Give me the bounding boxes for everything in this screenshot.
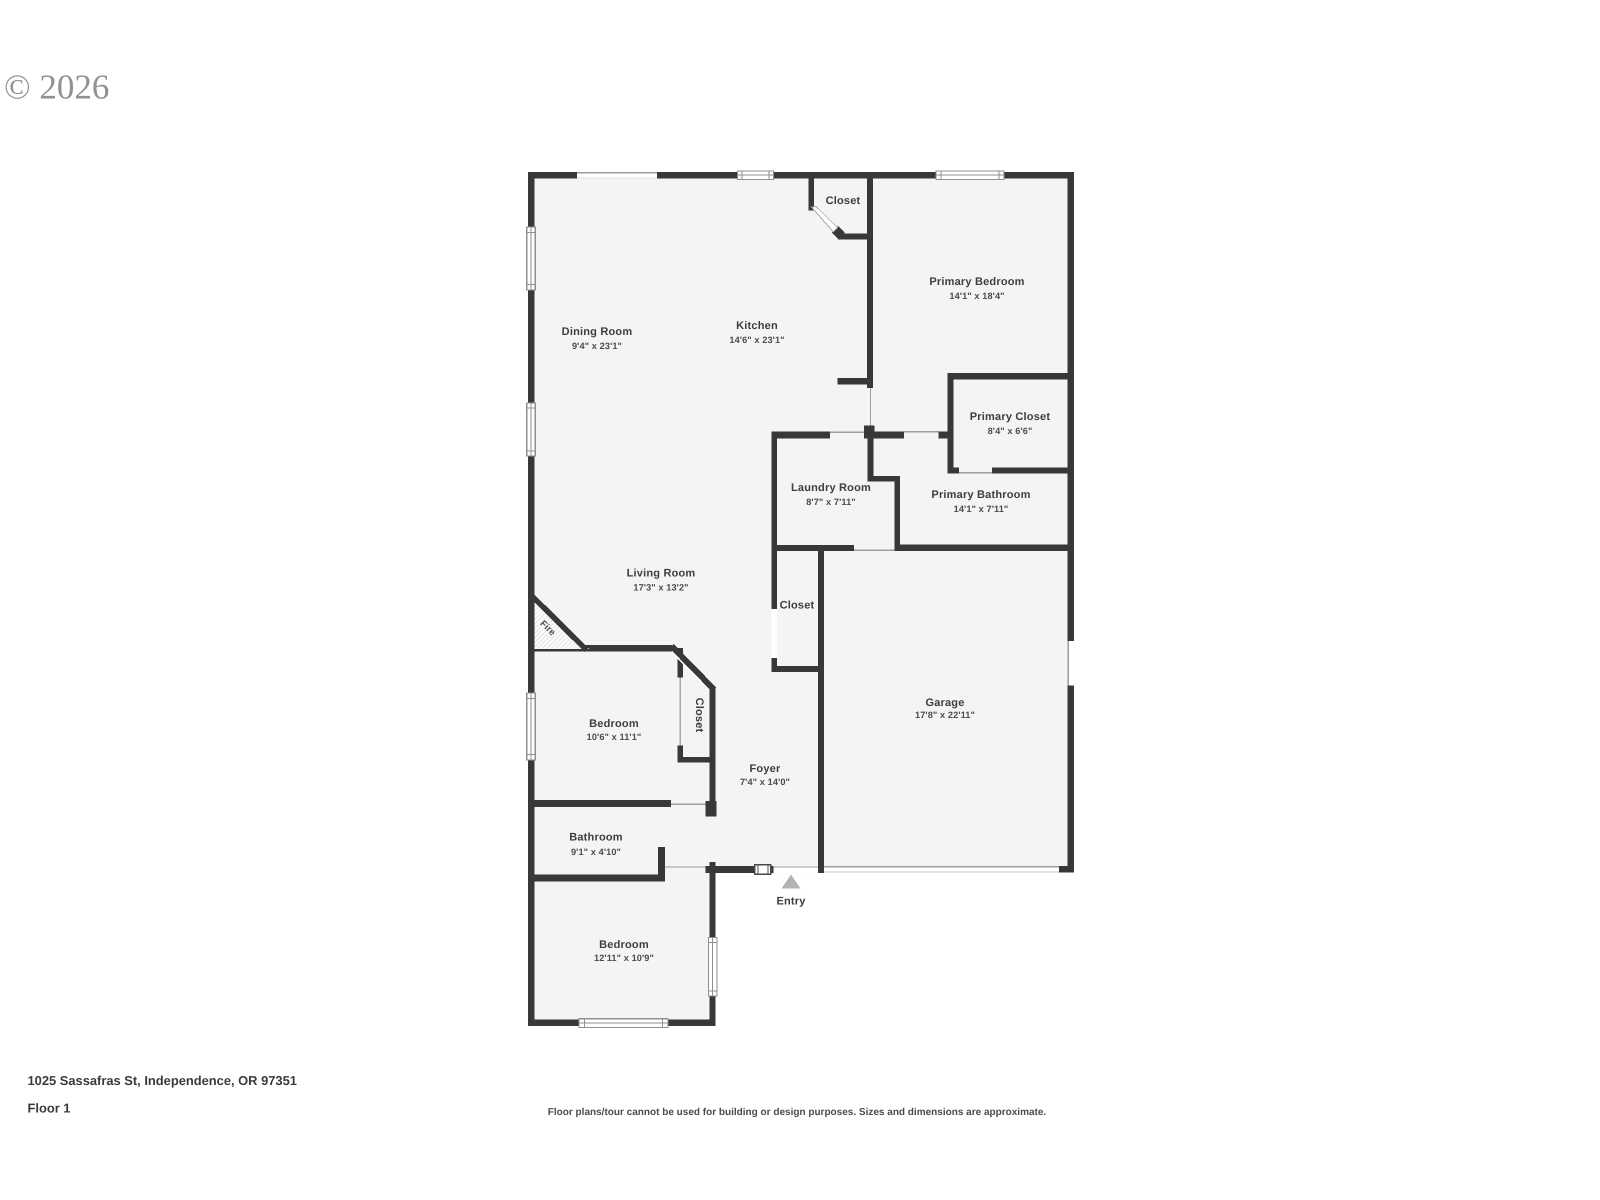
svg-text:1025 Sassafras St, Independenc: 1025 Sassafras St, Independence, OR 9735… xyxy=(28,1073,297,1088)
svg-text:9'1" x 4'10": 9'1" x 4'10" xyxy=(571,847,621,857)
svg-text:Floor plans/tour cannot be use: Floor plans/tour cannot be used for buil… xyxy=(548,1107,1047,1118)
svg-text:14'1" x 7'11": 14'1" x 7'11" xyxy=(954,504,1009,514)
svg-text:Bedroom: Bedroom xyxy=(589,718,639,730)
svg-text:9'4" x 23'1": 9'4" x 23'1" xyxy=(572,341,622,351)
svg-text:© 2026: © 2026 xyxy=(4,68,109,107)
svg-text:Kitchen: Kitchen xyxy=(736,320,778,332)
svg-text:Closet: Closet xyxy=(780,600,815,612)
svg-text:Garage: Garage xyxy=(925,697,964,709)
svg-text:Living Room: Living Room xyxy=(627,568,696,580)
svg-text:14'6" x 23'1": 14'6" x 23'1" xyxy=(729,335,784,345)
svg-text:8'4" x 6'6": 8'4" x 6'6" xyxy=(988,426,1033,436)
svg-text:Entry: Entry xyxy=(776,896,806,908)
svg-text:12'11" x 10'9": 12'11" x 10'9" xyxy=(594,953,654,963)
svg-text:Primary Bathroom: Primary Bathroom xyxy=(931,489,1030,501)
svg-text:Floor 1: Floor 1 xyxy=(28,1101,71,1116)
svg-text:Foyer: Foyer xyxy=(750,763,781,775)
svg-text:Laundry Room: Laundry Room xyxy=(791,482,871,494)
svg-text:Dining Room: Dining Room xyxy=(562,326,633,338)
svg-text:10'6" x 11'1": 10'6" x 11'1" xyxy=(587,732,642,742)
svg-text:Primary Closet: Primary Closet xyxy=(970,411,1051,423)
svg-text:8'7" x 7'11": 8'7" x 7'11" xyxy=(806,497,856,507)
svg-text:Primary Bedroom: Primary Bedroom xyxy=(929,276,1024,288)
svg-text:17'3" x 13'2": 17'3" x 13'2" xyxy=(633,583,688,593)
svg-text:7'4" x 14'0": 7'4" x 14'0" xyxy=(740,777,790,787)
svg-text:Bathroom: Bathroom xyxy=(569,832,623,844)
svg-text:14'1" x 18'4": 14'1" x 18'4" xyxy=(949,291,1004,301)
svg-text:Closet: Closet xyxy=(826,195,861,207)
svg-text:Closet: Closet xyxy=(693,698,705,733)
svg-text:Bedroom: Bedroom xyxy=(599,939,649,951)
svg-text:17'8" x 22'11": 17'8" x 22'11" xyxy=(915,710,975,720)
